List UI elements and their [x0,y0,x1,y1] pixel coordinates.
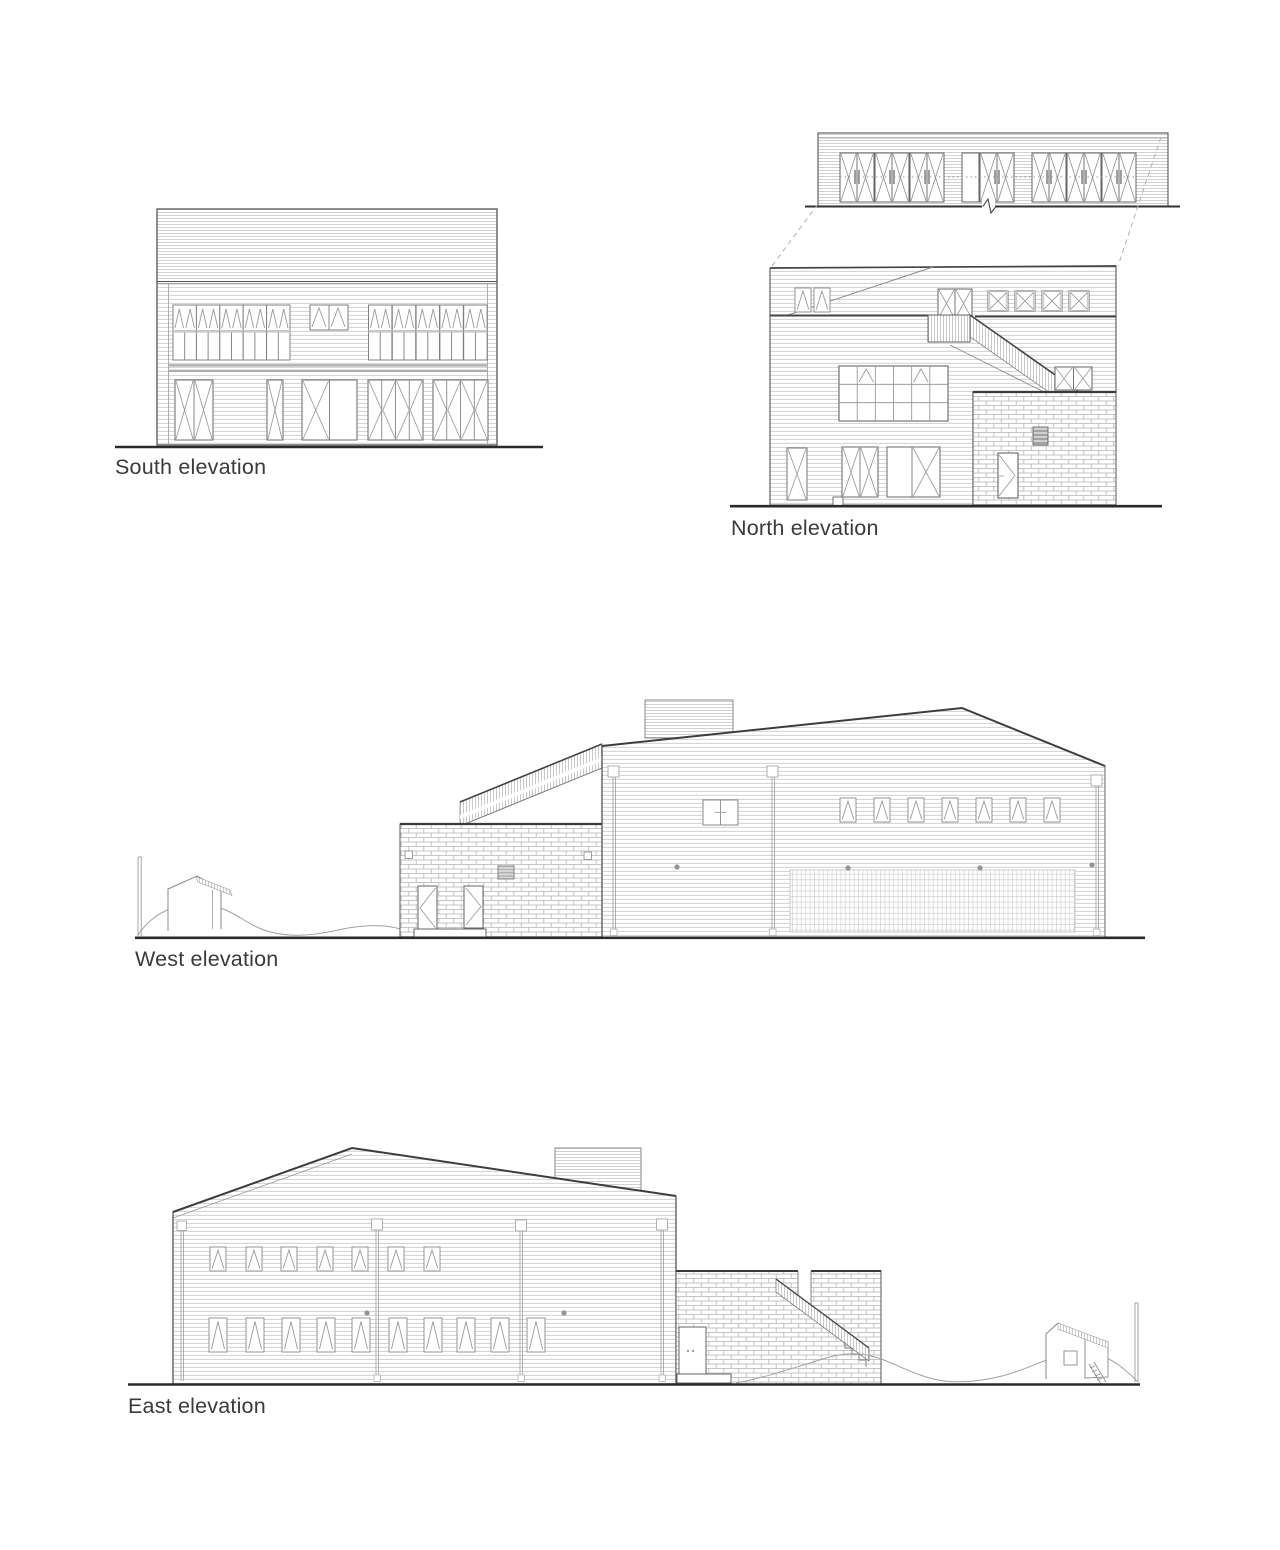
north-grid-window [839,366,948,421]
east-brick-annex [676,1266,881,1385]
east-door-threshold [677,1374,731,1383]
north-stair-window [1055,367,1092,390]
east-elevation-label: East elevation [128,1394,266,1419]
north-strip-plain-door [962,153,979,202]
south-door-double-mid [302,380,357,440]
north-door-step [833,497,843,506]
south-folding-door-2 [433,380,488,440]
north-stair-landing [928,315,970,342]
north-vent [1033,427,1048,445]
south-floor-band [169,364,487,366]
west-chimney [645,700,733,738]
elevation-linework [0,0,1280,1550]
west-brick-annex [400,824,602,937]
west-elevation-label: West elevation [135,947,278,972]
south-door-double-left [175,380,213,440]
east-elevation-drawing [128,1148,1140,1385]
west-elevation-drawing [135,700,1145,938]
elevation-sheet: South elevation North elevation West ele… [0,0,1280,1550]
west-play-hut [168,876,232,931]
north-elevation-label: North elevation [731,516,879,541]
west-pole [138,857,141,936]
south-folding-door-1 [368,380,423,440]
south-parapet [157,209,497,281]
west-brick-door-1 [418,886,437,930]
east-pole [1135,1303,1138,1382]
north-stair-top-door [938,289,972,318]
north-roof-door-strip [805,133,1180,215]
east-hut-window [1064,1351,1077,1365]
south-center-window [310,305,348,330]
west-external-stair [460,744,602,826]
west-door-threshold [414,929,486,937]
west-cross-window [703,800,738,825]
east-play-hut [1046,1323,1108,1384]
south-elevation-drawing [115,209,543,447]
south-door-single [267,380,283,440]
north-brick-annex [973,392,1116,505]
south-elevation-label: South elevation [115,455,266,480]
west-trellis-screen [790,870,1075,932]
north-elevation-drawing [730,133,1180,506]
